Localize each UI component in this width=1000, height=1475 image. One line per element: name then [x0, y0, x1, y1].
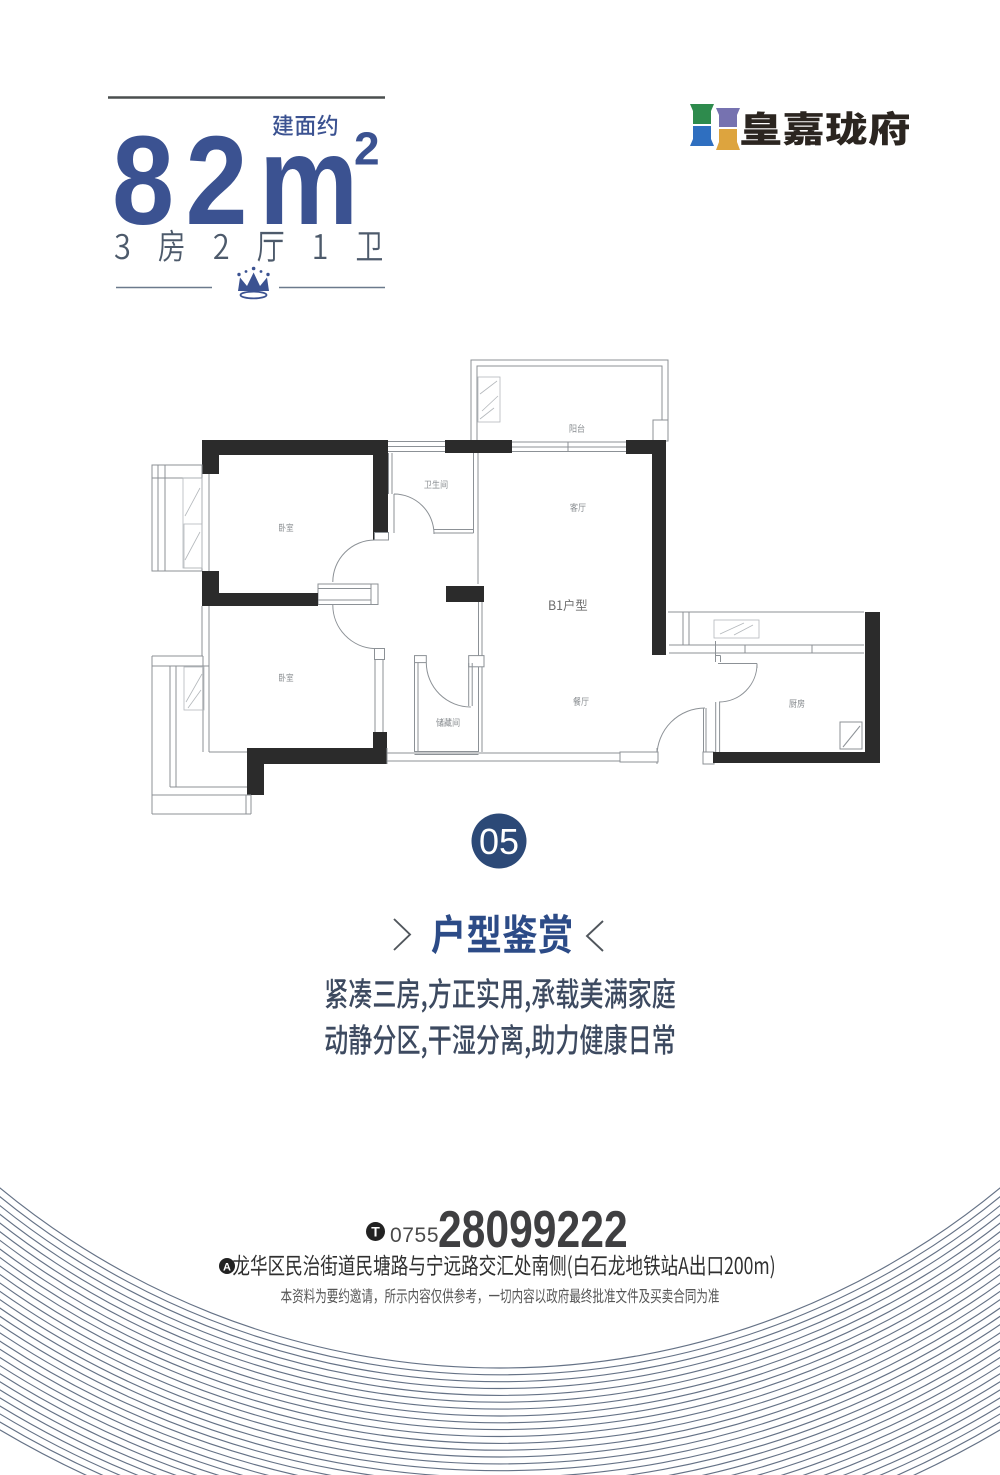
svg-text:2: 2 — [354, 123, 380, 175]
svg-text:05: 05 — [479, 821, 519, 862]
svg-text:0755: 0755 — [390, 1224, 439, 1247]
svg-text:A: A — [223, 1262, 231, 1274]
svg-text:82m: 82m — [112, 111, 370, 252]
svg-text:T: T — [371, 1224, 380, 1240]
svg-text:28099222: 28099222 — [438, 1201, 628, 1259]
